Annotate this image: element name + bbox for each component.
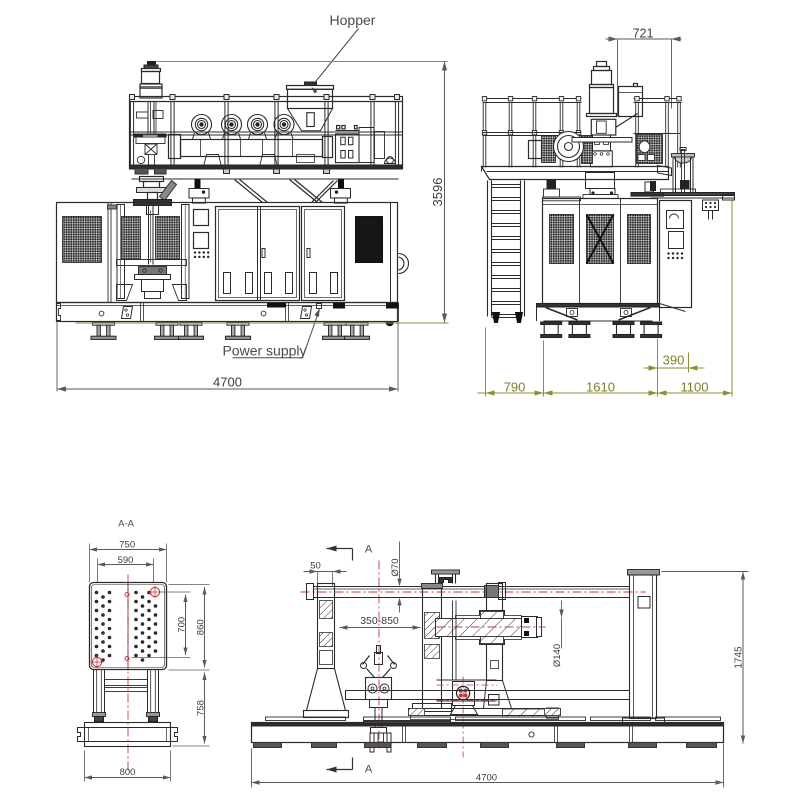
svg-text:860: 860 [196, 619, 207, 635]
svg-text:3596: 3596 [430, 178, 445, 207]
svg-text:721: 721 [633, 27, 654, 41]
svg-text:1610: 1610 [586, 380, 615, 395]
svg-text:A: A [365, 544, 373, 556]
svg-text:700: 700 [177, 617, 188, 633]
svg-text:4700: 4700 [476, 773, 497, 784]
svg-text:350-850: 350-850 [360, 615, 399, 627]
svg-text:50: 50 [310, 561, 321, 572]
svg-text:390: 390 [663, 353, 685, 368]
svg-text:Hopper: Hopper [330, 12, 376, 28]
svg-text:1100: 1100 [681, 380, 709, 395]
svg-text:A-A: A-A [118, 519, 135, 530]
svg-text:758: 758 [196, 700, 207, 716]
svg-text:750: 750 [119, 540, 135, 551]
svg-text:Ø140: Ø140 [552, 644, 563, 667]
svg-text:800: 800 [120, 767, 136, 778]
svg-text:590: 590 [118, 555, 134, 566]
svg-text:1745: 1745 [734, 646, 745, 669]
svg-text:790: 790 [504, 380, 526, 395]
svg-text:A: A [365, 764, 373, 776]
svg-text:Power supply: Power supply [222, 343, 306, 359]
svg-text:4700: 4700 [213, 375, 242, 390]
